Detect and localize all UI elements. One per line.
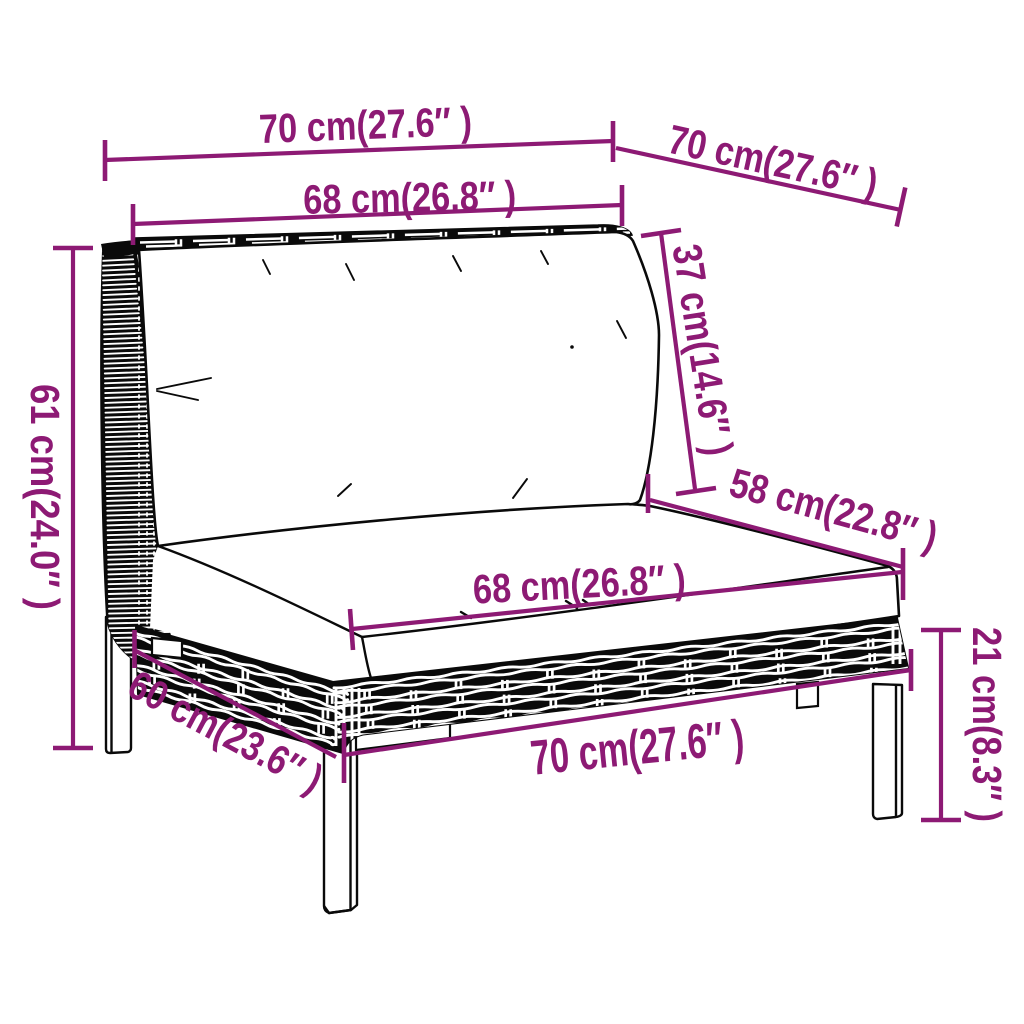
svg-text:68 cm(26.8″ ): 68 cm(26.8″ )	[303, 172, 517, 222]
svg-text:21 cm(8.3″ ): 21 cm(8.3″ )	[964, 627, 1010, 822]
svg-text:61 cm(24.0″ ): 61 cm(24.0″ )	[22, 384, 68, 610]
svg-text:70 cm(27.6″ ): 70 cm(27.6″ )	[258, 98, 473, 152]
